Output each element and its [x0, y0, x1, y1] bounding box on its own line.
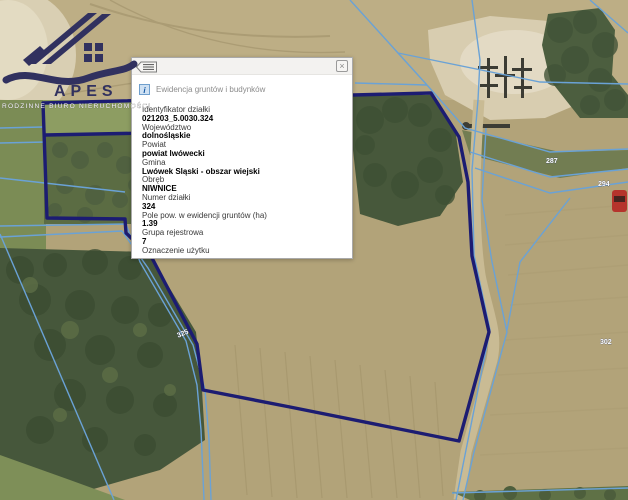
field-label: Obręb	[142, 176, 349, 185]
field-value: dolnośląskie	[142, 132, 349, 141]
info-popup: × i Ewidencja gruntów i budynków Identyf…	[131, 57, 353, 259]
field-value: powiat lwówecki	[142, 150, 349, 159]
field-label: Pole pow. w ewidencji gruntów (ha)	[142, 212, 349, 221]
field-label: Grupa rejestrowa	[142, 229, 349, 238]
red-car	[612, 190, 627, 212]
parcel-label: 294	[598, 181, 610, 188]
field-label: Identyfikator działki	[142, 106, 349, 115]
parcel-label: 287	[546, 158, 558, 165]
field-value: 1.39	[142, 220, 349, 229]
field-value: 324	[142, 203, 349, 212]
popup-title: Ewidencja gruntów i budynków	[156, 85, 265, 94]
field-value: NIWNICE	[142, 185, 349, 194]
parcel-label: 302	[600, 339, 612, 346]
grass-strip	[0, 100, 46, 252]
field-label: Numer działki	[142, 194, 349, 203]
field-label: Województwo	[142, 124, 349, 133]
field-label: Gmina	[142, 159, 349, 168]
field-value: 7	[142, 238, 349, 247]
back-to-list-button[interactable]	[135, 60, 158, 72]
attribute-list: Identyfikator działki 021203_5.0030.324 …	[142, 106, 349, 256]
popup-header: ×	[132, 58, 352, 75]
field-value: 021203_5.0030.324	[142, 115, 349, 124]
popup-title-row: i Ewidencja gruntów i budynków	[139, 83, 265, 95]
field-label: Powiat	[142, 141, 349, 150]
info-icon: i	[139, 84, 150, 95]
field-label: Oznaczenie użytku	[142, 247, 349, 256]
field-value: Lwówek Śląski - obszar wiejski	[142, 168, 349, 177]
close-button[interactable]: ×	[336, 60, 348, 72]
